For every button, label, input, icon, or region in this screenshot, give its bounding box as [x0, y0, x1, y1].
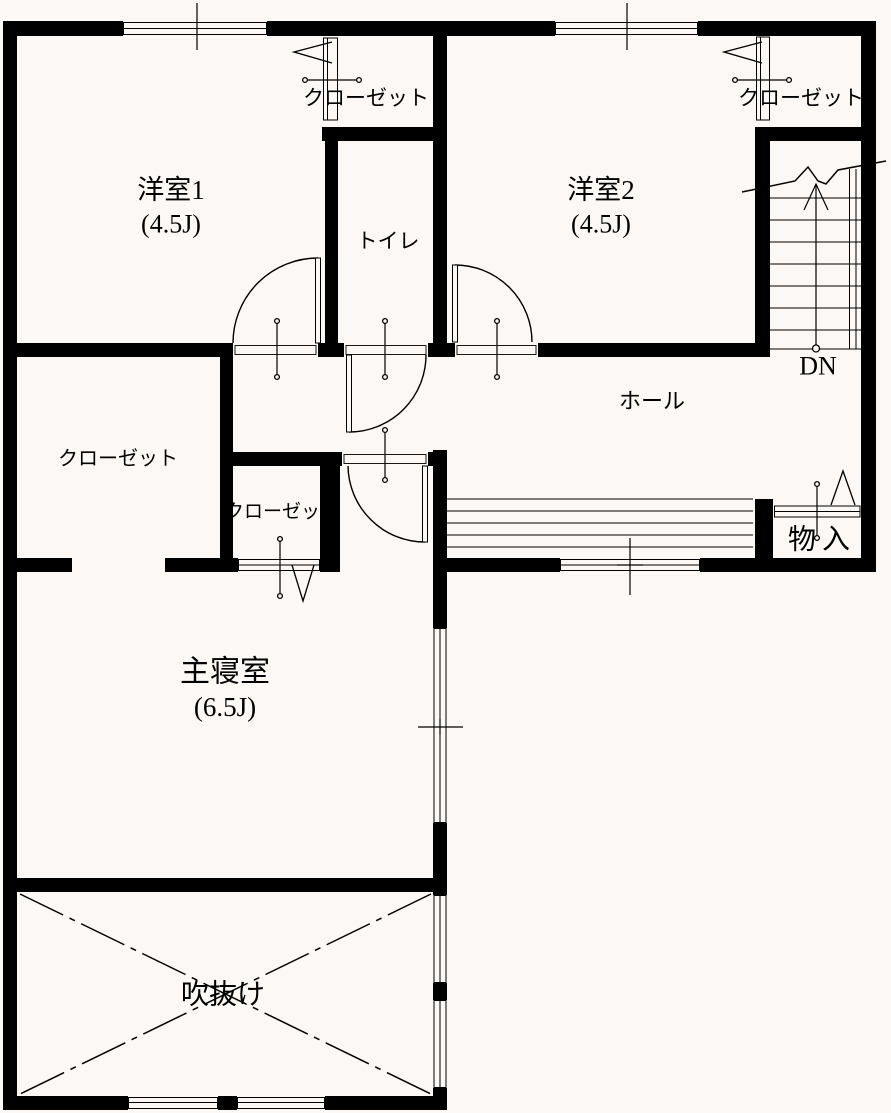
wall-closet1-bottom	[322, 127, 447, 141]
door-swing-arc	[455, 265, 532, 342]
hall-railing-slats	[447, 499, 753, 547]
label-closet-room1: クローゼット	[303, 86, 429, 110]
label-room2-size: (4.5J)	[571, 210, 631, 239]
marker-dot	[495, 375, 500, 380]
label-toilet: トイレ	[357, 229, 420, 253]
marker-dot	[383, 478, 388, 483]
arrow-up-storage	[831, 471, 855, 505]
marker-dot	[357, 78, 362, 83]
door-toilet	[347, 355, 427, 432]
closet-door-small	[239, 560, 320, 571]
door-leaf	[423, 466, 428, 542]
label-room1: 洋室1	[137, 175, 205, 205]
marker-dot	[383, 428, 388, 433]
wall-large-closet-right	[220, 355, 233, 572]
wall-center-vertical-upper	[433, 21, 447, 355]
opening-markers	[197, 3, 819, 735]
marker-dot	[495, 319, 500, 324]
door-room2	[453, 265, 533, 342]
marker-dot	[383, 319, 388, 324]
label-stairs-dn: DN	[799, 352, 837, 381]
door-swing-arc	[349, 355, 426, 432]
wall-storage-left	[755, 499, 773, 572]
wall-toilet-left	[325, 127, 338, 355]
wall-outer-bottom	[3, 1096, 447, 1110]
label-master-bedroom: 主寝室	[180, 656, 270, 689]
marker-dot	[383, 375, 388, 380]
marker-dot	[278, 537, 283, 542]
door-swing-arc	[233, 258, 318, 343]
label-closet-master-large: クローゼット	[58, 447, 178, 470]
label-master-size: (6.5J)	[194, 692, 256, 722]
marker-dot	[275, 375, 280, 380]
floor-plan-drawing: 洋室1 (4.5J) 洋室2 (4.5J) トイレ クローゼット クローゼット …	[0, 0, 891, 1113]
label-room2: 洋室2	[567, 175, 635, 205]
wall-closet2-bottom	[755, 127, 875, 141]
label-closet-room2: クローゼット	[738, 86, 864, 110]
wall-stair-left	[755, 127, 770, 355]
stair-stringer	[850, 169, 857, 349]
marker-dot	[815, 482, 820, 487]
label-hall: ホール	[619, 389, 685, 414]
floor-plan: 洋室1 (4.5J) 洋室2 (4.5J) トイレ クローゼット クローゼット …	[0, 0, 891, 1113]
marker-window-bedroom	[418, 719, 463, 735]
label-closet-master-small: クローゼット	[225, 501, 339, 523]
opening-large-closet	[72, 558, 165, 572]
marker-dot	[278, 594, 283, 599]
label-room1-size: (4.5J)	[141, 210, 201, 239]
door-leaf	[316, 258, 321, 343]
marker-dot	[733, 78, 738, 83]
door-bedroom	[348, 466, 428, 542]
marker-dot	[275, 319, 280, 324]
marker-dot	[787, 78, 792, 83]
label-storage: 物入	[788, 524, 856, 556]
door-leaf	[453, 265, 458, 342]
marker-dot	[303, 78, 308, 83]
wall-bedroom-south	[3, 878, 447, 892]
door-leaf	[347, 355, 352, 432]
room-labels: 洋室1 (4.5J) 洋室2 (4.5J) トイレ クローゼット クローゼット …	[58, 86, 864, 1011]
label-void: 吹抜け	[181, 979, 265, 1011]
